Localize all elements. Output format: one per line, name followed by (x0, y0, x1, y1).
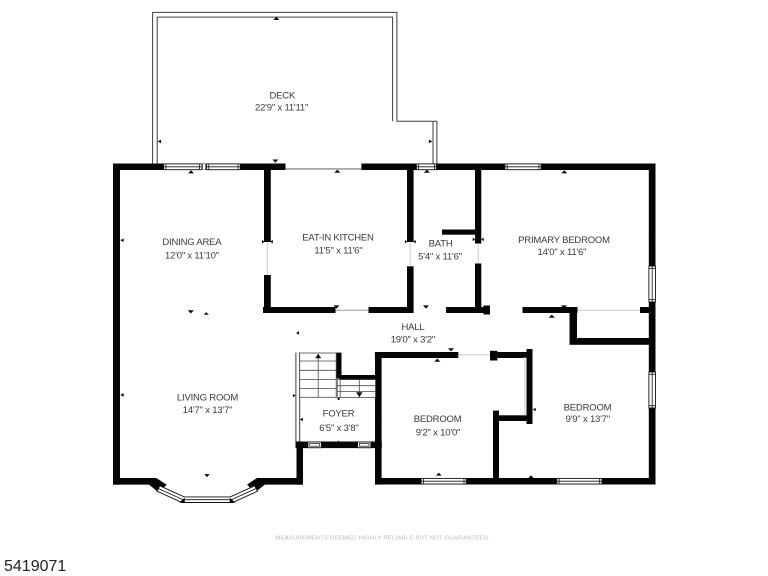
svg-text:5419071: 5419071 (4, 558, 66, 575)
svg-text:FOYER: FOYER (323, 409, 355, 420)
svg-text:5'4" x 11'6": 5'4" x 11'6" (418, 252, 462, 263)
svg-text:9'2" x 10'0": 9'2" x 10'0" (416, 428, 460, 439)
svg-text:11'5" x 11'6": 11'5" x 11'6" (314, 245, 362, 256)
svg-text:DINING AREA: DINING AREA (162, 237, 222, 248)
svg-text:DECK: DECK (269, 90, 295, 101)
svg-text:EAT-IN KITCHEN: EAT-IN KITCHEN (302, 233, 374, 244)
svg-text:19'0" x 3'2": 19'0" x 3'2" (391, 334, 435, 345)
svg-text:14'0" x 11'6": 14'0" x 11'6" (538, 247, 587, 258)
svg-text:12'0" x 11'10": 12'0" x 11'10" (165, 251, 219, 262)
svg-text:BATH: BATH (429, 239, 453, 250)
svg-text:BEDROOM: BEDROOM (414, 414, 462, 425)
svg-text:9'9" x 13'7": 9'9" x 13'7" (566, 414, 610, 425)
svg-text:LIVING ROOM: LIVING ROOM (177, 392, 238, 403)
svg-text:22'9" x 11'11": 22'9" x 11'11" (255, 102, 308, 113)
svg-text:MEASUREMENTS DEEMED HIGHLY REL: MEASUREMENTS DEEMED HIGHLY RELIABLE BUT … (275, 535, 490, 541)
svg-text:6'5" x 3'8": 6'5" x 3'8" (319, 423, 358, 434)
svg-text:PRIMARY BEDROOM: PRIMARY BEDROOM (518, 235, 610, 246)
svg-text:BEDROOM: BEDROOM (564, 402, 612, 413)
svg-text:14'7" x 13'7": 14'7" x 13'7" (183, 405, 233, 416)
svg-text:HALL: HALL (402, 322, 425, 333)
